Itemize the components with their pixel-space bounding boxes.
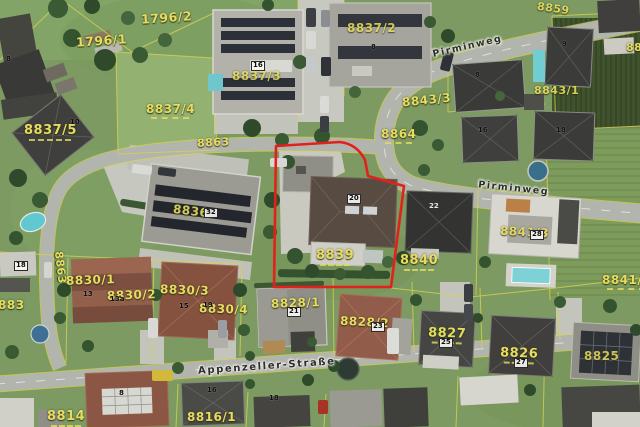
house-number: 9 <box>562 41 567 49</box>
house-number: 16 <box>478 127 488 135</box>
parcel-label-8837-2: 8837/2 <box>347 22 396 34</box>
parcel-label-8816-1: 8816/1 <box>187 411 236 423</box>
house-number: 8 <box>371 44 376 52</box>
building-18 <box>533 111 595 161</box>
parcel-label-8839: 8839 <box>316 249 354 266</box>
parcel-label-8863: 8863 <box>197 136 230 149</box>
house-number: 16 <box>251 61 265 71</box>
map-viewport[interactable]: 1796/1 1796/2 8837/5 8837/4 8837/3 8837/… <box>0 0 640 427</box>
parcel-label-8843-1: 8843/1 <box>534 85 579 96</box>
house-number: 22 <box>429 203 439 211</box>
parcel-label-8841-1: 8841/1 <box>602 274 640 290</box>
house-number: 13a <box>110 296 124 304</box>
house-number: 10 <box>70 119 80 127</box>
parcel-label-8864: 8864 <box>381 128 416 144</box>
parcel-label-883x: 883 <box>0 299 25 311</box>
round-pool <box>528 161 548 181</box>
house-number: 23 <box>371 322 385 332</box>
building-8839-main <box>309 177 397 248</box>
house-number: 15 <box>179 303 189 311</box>
house-number: 18 <box>269 395 279 403</box>
house-number: 32 <box>204 208 218 218</box>
house-number: 28 <box>530 230 544 240</box>
building-8837-2 <box>329 3 431 87</box>
house-number: 8 <box>475 72 480 80</box>
swimming-pool <box>208 74 223 91</box>
building-s18 <box>253 395 310 427</box>
trampoline <box>337 358 359 380</box>
parcel-label-8837-4: 8837/4 <box>146 103 195 119</box>
swimming-pool <box>533 50 545 82</box>
parcel-label-8837-3: 8837/3 <box>232 70 281 82</box>
swimming-pool <box>512 267 551 283</box>
house-number: 16 <box>207 387 217 395</box>
house-number: 21 <box>287 307 301 317</box>
house-number: 20 <box>347 194 361 204</box>
building-tr-9 <box>545 27 594 87</box>
house-number: 27 <box>514 358 528 368</box>
parcel-label-8830-3: 8830/3 <box>160 283 210 297</box>
house-number: 18 <box>14 261 28 271</box>
house-number: 13 <box>83 291 93 299</box>
parcel-label-884x: 88 <box>626 42 640 53</box>
house-number: 18 <box>556 127 566 135</box>
building-8843-3 <box>452 60 525 113</box>
parcel-label-8840: 8840 <box>400 254 438 271</box>
parcel-label-8814: 8814 <box>47 410 85 427</box>
house-number: 25 <box>439 338 453 348</box>
house-number: 8 <box>6 56 11 64</box>
house-number: 8 <box>119 390 124 398</box>
parcel-label-8825: 8825 <box>584 350 619 362</box>
house-number: 19 <box>203 302 213 310</box>
building-16 <box>461 115 519 163</box>
round-pool <box>31 325 49 343</box>
parcel-label-8830-1: 8830/1 <box>66 273 116 287</box>
